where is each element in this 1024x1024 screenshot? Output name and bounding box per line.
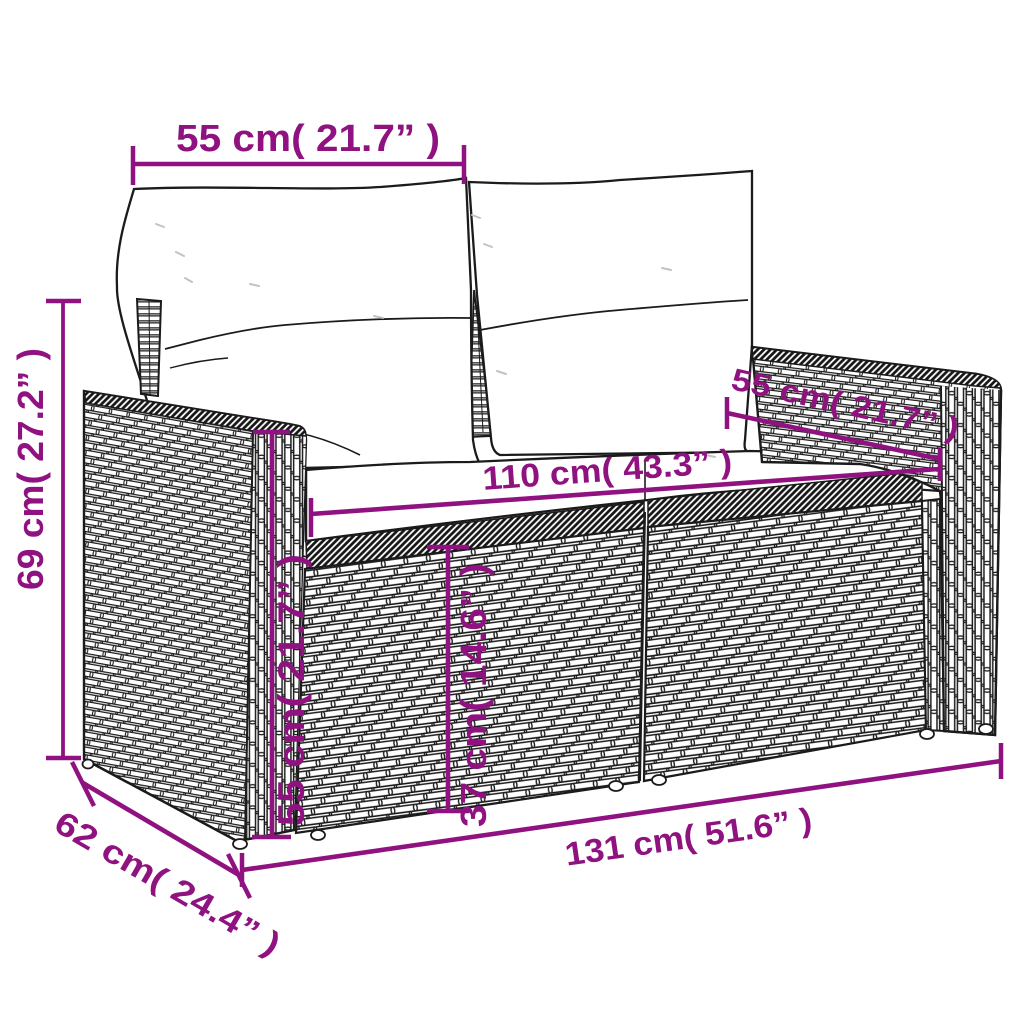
svg-text:55 cm( 21.7” ): 55 cm( 21.7” ) — [176, 118, 440, 160]
svg-text:55 cm( 21.7” ): 55 cm( 21.7” ) — [271, 554, 312, 826]
svg-text:37 cm( 14.6” ): 37 cm( 14.6” ) — [453, 563, 494, 827]
svg-text:69 cm( 27.2” ): 69 cm( 27.2” ) — [10, 348, 51, 590]
